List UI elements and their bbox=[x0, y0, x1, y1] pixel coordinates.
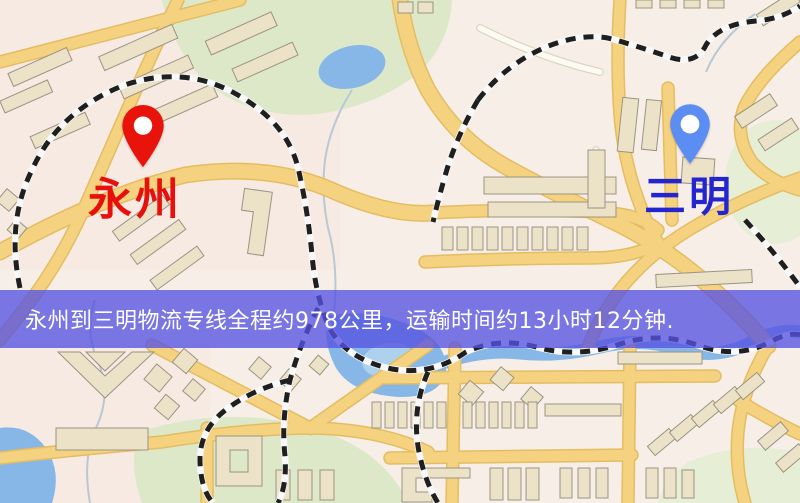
origin-pin-hole bbox=[134, 116, 152, 134]
destination-city-label: 三明 bbox=[644, 176, 734, 218]
map-viewport[interactable]: 永州 三明 永州到三明物流专线全程约978公里，运输时间约13小时12分钟. bbox=[0, 0, 800, 503]
route-info-text: 永州到三明物流专线全程约978公里，运输时间约13小时12分钟. bbox=[0, 303, 674, 335]
destination-pin[interactable] bbox=[668, 103, 712, 165]
map-canvas bbox=[0, 0, 800, 503]
route-info-banner: 永州到三明物流专线全程约978公里，运输时间约13小时12分钟. bbox=[0, 290, 800, 348]
origin-pin-icon bbox=[122, 105, 163, 167]
destination-pin-icon bbox=[670, 104, 710, 163]
origin-city-label: 永州 bbox=[88, 178, 182, 222]
destination-pin-hole bbox=[681, 115, 700, 134]
origin-pin[interactable] bbox=[120, 103, 166, 169]
